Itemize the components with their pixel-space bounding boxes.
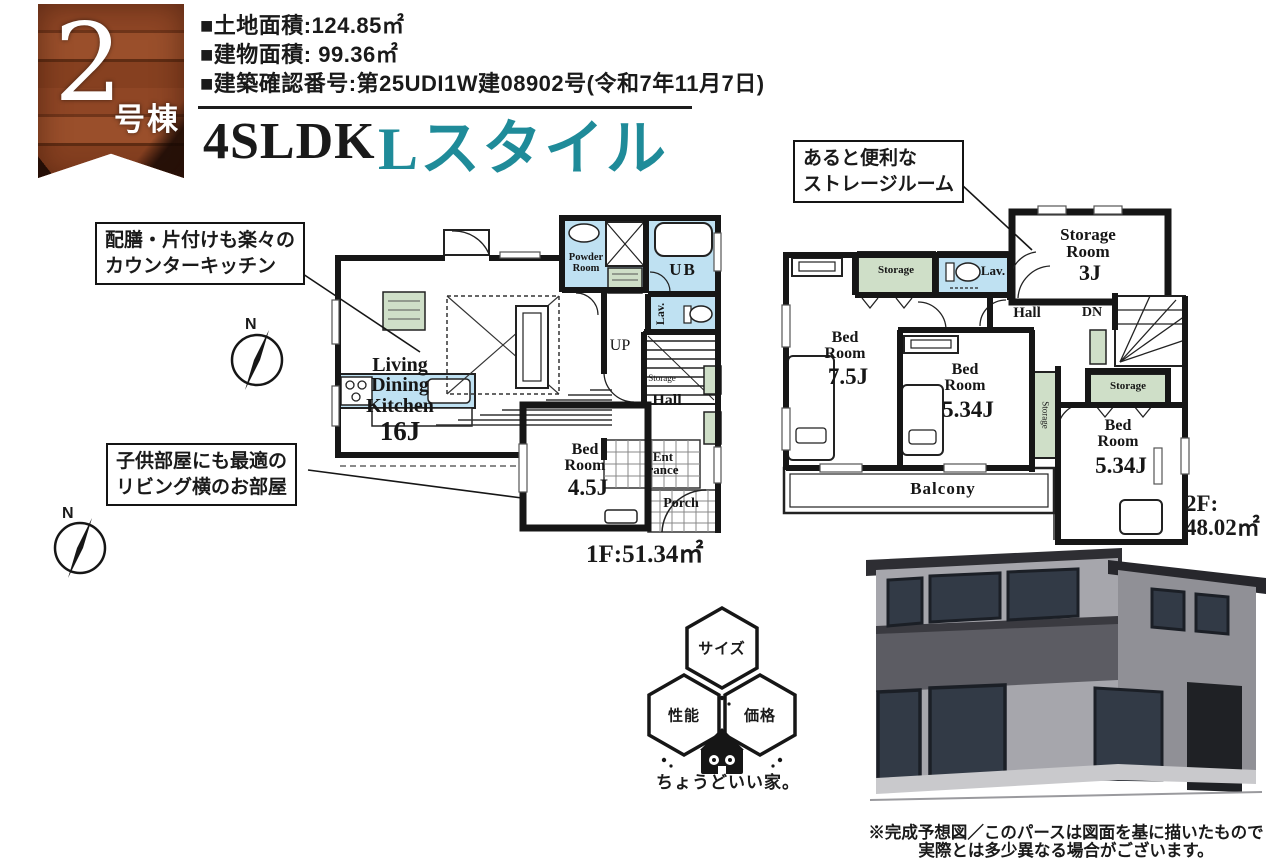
lot-number-badge: 2 号棟 bbox=[38, 4, 184, 178]
logo-hex-price: 価格 bbox=[744, 705, 776, 726]
room-label-ub: UB bbox=[669, 261, 697, 278]
spec-building-area: ■建物面積: 99.36㎡ bbox=[200, 37, 398, 69]
room-size-ldk: 16J bbox=[380, 418, 421, 446]
room-size-bedroom-1f: 4.5J bbox=[568, 476, 608, 499]
lot-number: 2 bbox=[54, 10, 123, 118]
room-label-storage-top: Storage bbox=[878, 265, 914, 276]
callout-kitchen: 配膳・片付けも楽々の カウンターキッチン bbox=[95, 222, 305, 285]
spec-building-permit: ■建築確認番号:第25UDI1W建08902号(令和7年11月7日) bbox=[200, 66, 765, 98]
room-size-storage-room: 3J bbox=[1079, 262, 1101, 284]
room-label-ldk: Living Dining Kitchen bbox=[366, 355, 434, 416]
compass-north-label: N bbox=[62, 505, 74, 523]
compass-north-label: N bbox=[245, 316, 257, 334]
room-label-storage-room: Storage Room bbox=[1060, 226, 1116, 261]
compass-icon bbox=[232, 330, 282, 390]
plan-type-title: 4SLDK bbox=[203, 112, 376, 171]
room-label-lav-1f: Lav. bbox=[654, 303, 666, 325]
room-size-bedroom2-2f: 5.34J bbox=[942, 398, 994, 421]
logo-tagline: ちょうどいい家。 bbox=[652, 768, 804, 793]
room-label-balcony: Balcony bbox=[910, 480, 976, 497]
disclaimer-text: ※完成予想図／このパースは図面を基に描いたもので 実際とは多少異なる場合がござい… bbox=[856, 824, 1276, 859]
room-size-bedroom3-2f: 5.34J bbox=[1095, 454, 1147, 477]
house-render bbox=[866, 548, 1266, 800]
room-label-bedroom-1f: Bed Room bbox=[565, 442, 606, 475]
logo-hex-performance: 性能 bbox=[668, 705, 700, 726]
floor2-area: 2F: 48.02㎡ bbox=[1185, 492, 1260, 540]
room-label-storage-right: Storage bbox=[1110, 381, 1146, 392]
spec-land-area: ■土地面積:124.85㎡ bbox=[200, 8, 404, 40]
room-label-hall-1f: Hall bbox=[652, 393, 681, 409]
compass-icon bbox=[55, 518, 105, 578]
room-label-hall-2f: Hall bbox=[1013, 306, 1041, 321]
lot-number-suffix: 号棟 bbox=[114, 94, 180, 139]
room-label-entrance: Ent rance bbox=[647, 450, 678, 477]
room-label-dn: DN bbox=[1082, 306, 1102, 320]
floor1-area: 1F:51.34㎡ bbox=[586, 542, 703, 568]
room-label-porch: Porch bbox=[663, 497, 699, 511]
room-label-bedroom2-2f: Bed Room bbox=[945, 362, 986, 395]
callout-storage: あると便利な ストレージルーム bbox=[793, 140, 964, 203]
room-label-bedroom3-2f: Bed Room bbox=[1098, 418, 1139, 451]
room-label-up: UP bbox=[610, 338, 630, 354]
room-label-storage-mid: Storage bbox=[1040, 401, 1049, 429]
room-size-bedroom1-2f: 7.5J bbox=[828, 365, 868, 388]
room-label-bedroom1-2f: Bed Room bbox=[825, 330, 866, 363]
room-label-lav-2f: Lav. bbox=[981, 264, 1005, 277]
style-name-title: Lスタイル bbox=[378, 100, 668, 187]
room-label-storage-1f: Storage bbox=[648, 374, 676, 383]
flyer-page: 2 号棟 ■土地面積:124.85㎡ ■建物面積: 99.36㎡ ■建築確認番号… bbox=[0, 0, 1280, 859]
logo-hex-size: サイズ bbox=[698, 638, 746, 659]
callout-kids-room: 子供部屋にも最適の リビング横のお部屋 bbox=[106, 443, 297, 506]
room-label-powder: Powder Room bbox=[569, 253, 603, 274]
